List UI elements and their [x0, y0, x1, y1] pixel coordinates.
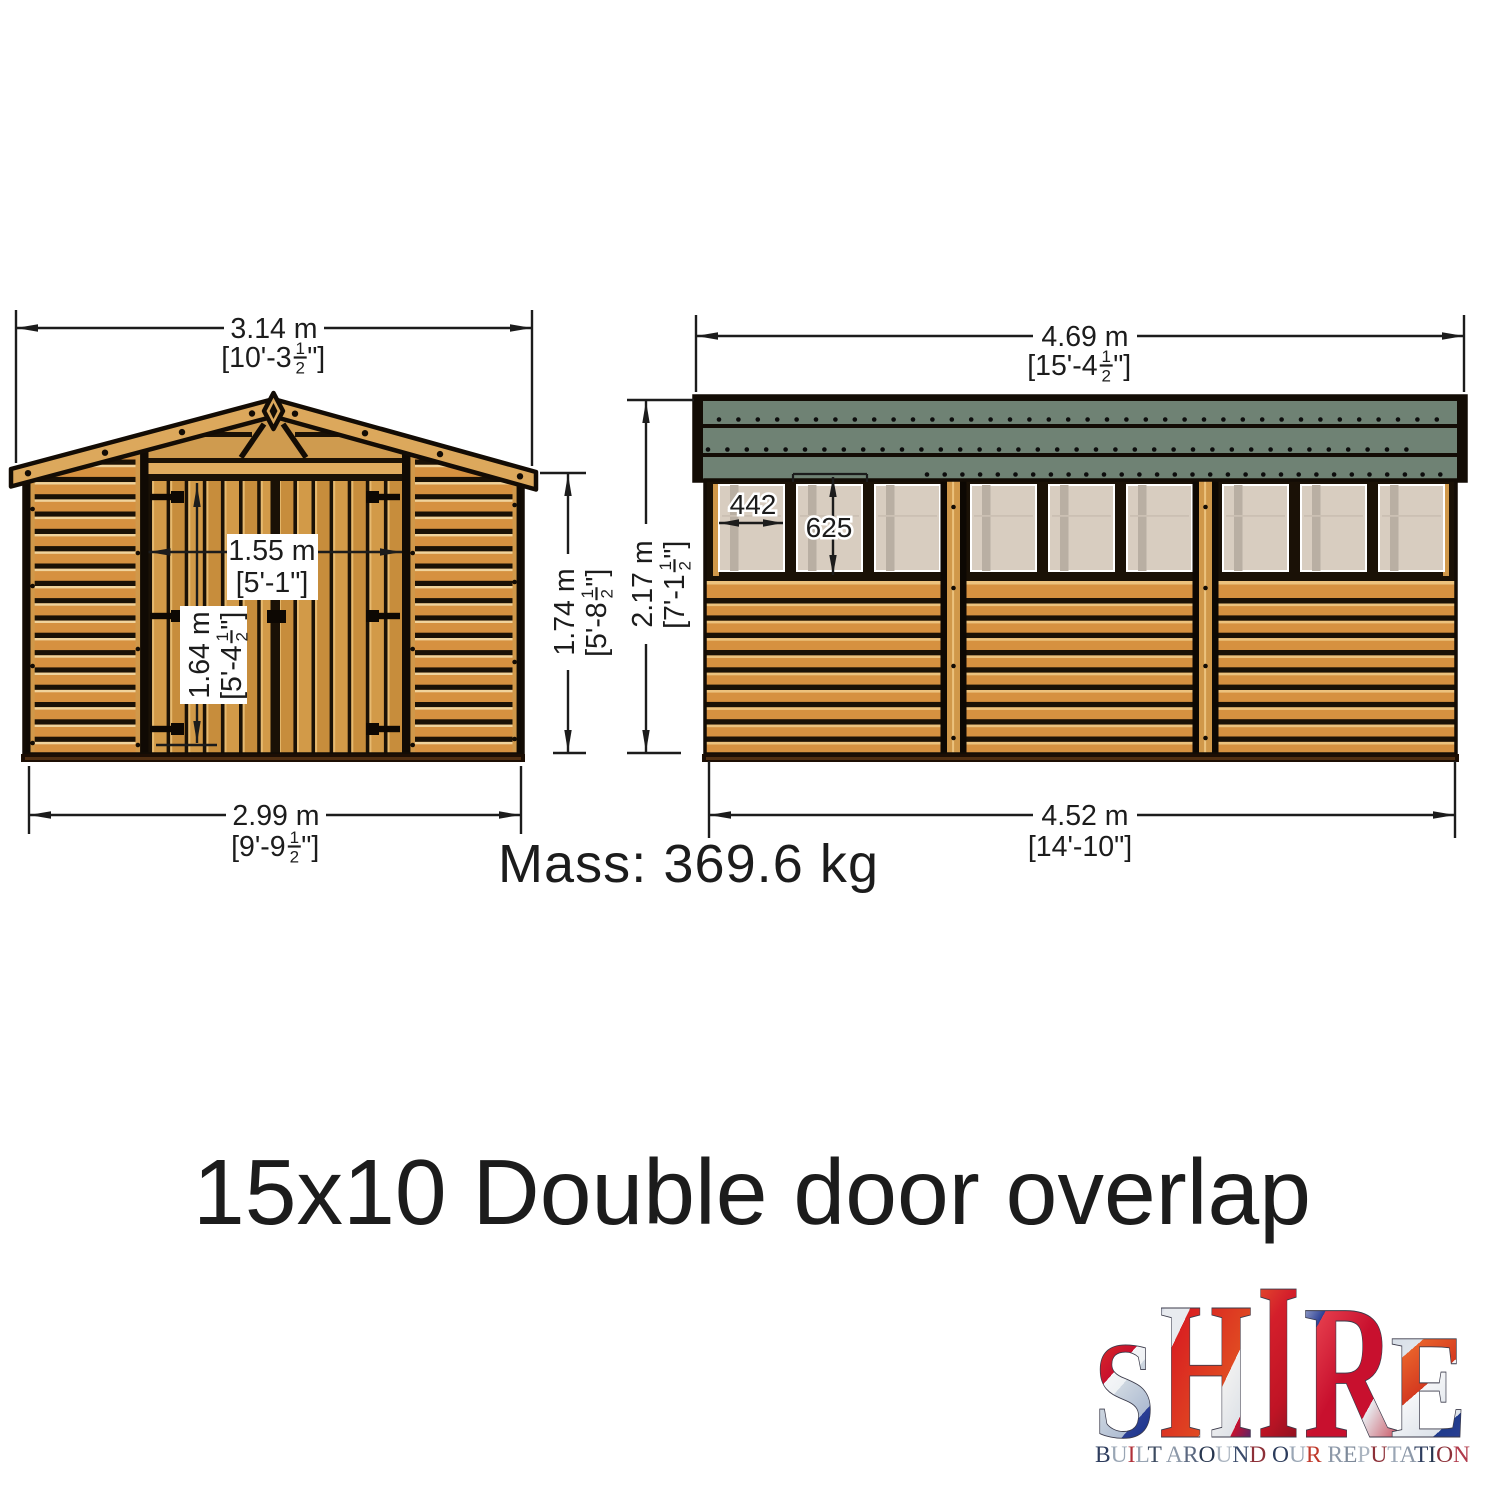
- svg-text:15x10 Double door overlap: 15x10 Double door overlap: [193, 1140, 1311, 1244]
- svg-text:[5'-4: [5'-4: [216, 645, 248, 700]
- svg-text:"]: "]: [581, 569, 613, 587]
- svg-text:1: 1: [578, 589, 597, 598]
- svg-text:[7'-1: [7'-1: [659, 574, 691, 629]
- svg-text:"]: "]: [301, 831, 319, 863]
- svg-text:1: 1: [290, 828, 299, 847]
- svg-text:[5'-1"]: [5'-1"]: [236, 567, 309, 599]
- svg-text:1.55 m: 1.55 m: [228, 535, 315, 567]
- svg-text:4.69 m: 4.69 m: [1041, 321, 1128, 353]
- svg-text:1.74 m: 1.74 m: [549, 568, 581, 655]
- svg-text:2.17 m: 2.17 m: [627, 540, 659, 627]
- svg-text:[9'-9: [9'-9: [231, 831, 286, 863]
- svg-text:2: 2: [1101, 367, 1110, 386]
- svg-text:1: 1: [213, 632, 232, 641]
- svg-text:625: 625: [806, 512, 853, 543]
- svg-text:1: 1: [656, 561, 675, 570]
- svg-text:BUILT AROUND OUR REPUTATION: BUILT AROUND OUR REPUTATION: [1095, 1442, 1472, 1468]
- svg-text:2: 2: [295, 359, 304, 378]
- svg-text:2: 2: [233, 632, 252, 641]
- svg-text:"]: "]: [307, 342, 325, 374]
- svg-text:1: 1: [295, 339, 304, 358]
- svg-text:4.52 m: 4.52 m: [1041, 800, 1128, 832]
- svg-text:1.64 m: 1.64 m: [184, 611, 216, 698]
- svg-text:"]: "]: [1113, 350, 1131, 382]
- svg-text:442: 442: [730, 489, 777, 520]
- svg-text:1: 1: [1101, 347, 1110, 366]
- svg-text:"]: "]: [216, 612, 248, 630]
- svg-text:[14'-10"]: [14'-10"]: [1028, 831, 1132, 863]
- svg-text:[15'-4: [15'-4: [1027, 350, 1098, 382]
- svg-text:2.99 m: 2.99 m: [232, 800, 319, 832]
- svg-text:2: 2: [676, 561, 695, 570]
- svg-text:2: 2: [290, 848, 299, 867]
- svg-text:[5'-8: [5'-8: [581, 602, 613, 657]
- svg-text:[10'-3: [10'-3: [221, 342, 291, 374]
- svg-text:Mass: 369.6 kg: Mass: 369.6 kg: [498, 834, 878, 894]
- svg-text:2: 2: [598, 589, 617, 598]
- svg-text:"]: "]: [659, 541, 691, 559]
